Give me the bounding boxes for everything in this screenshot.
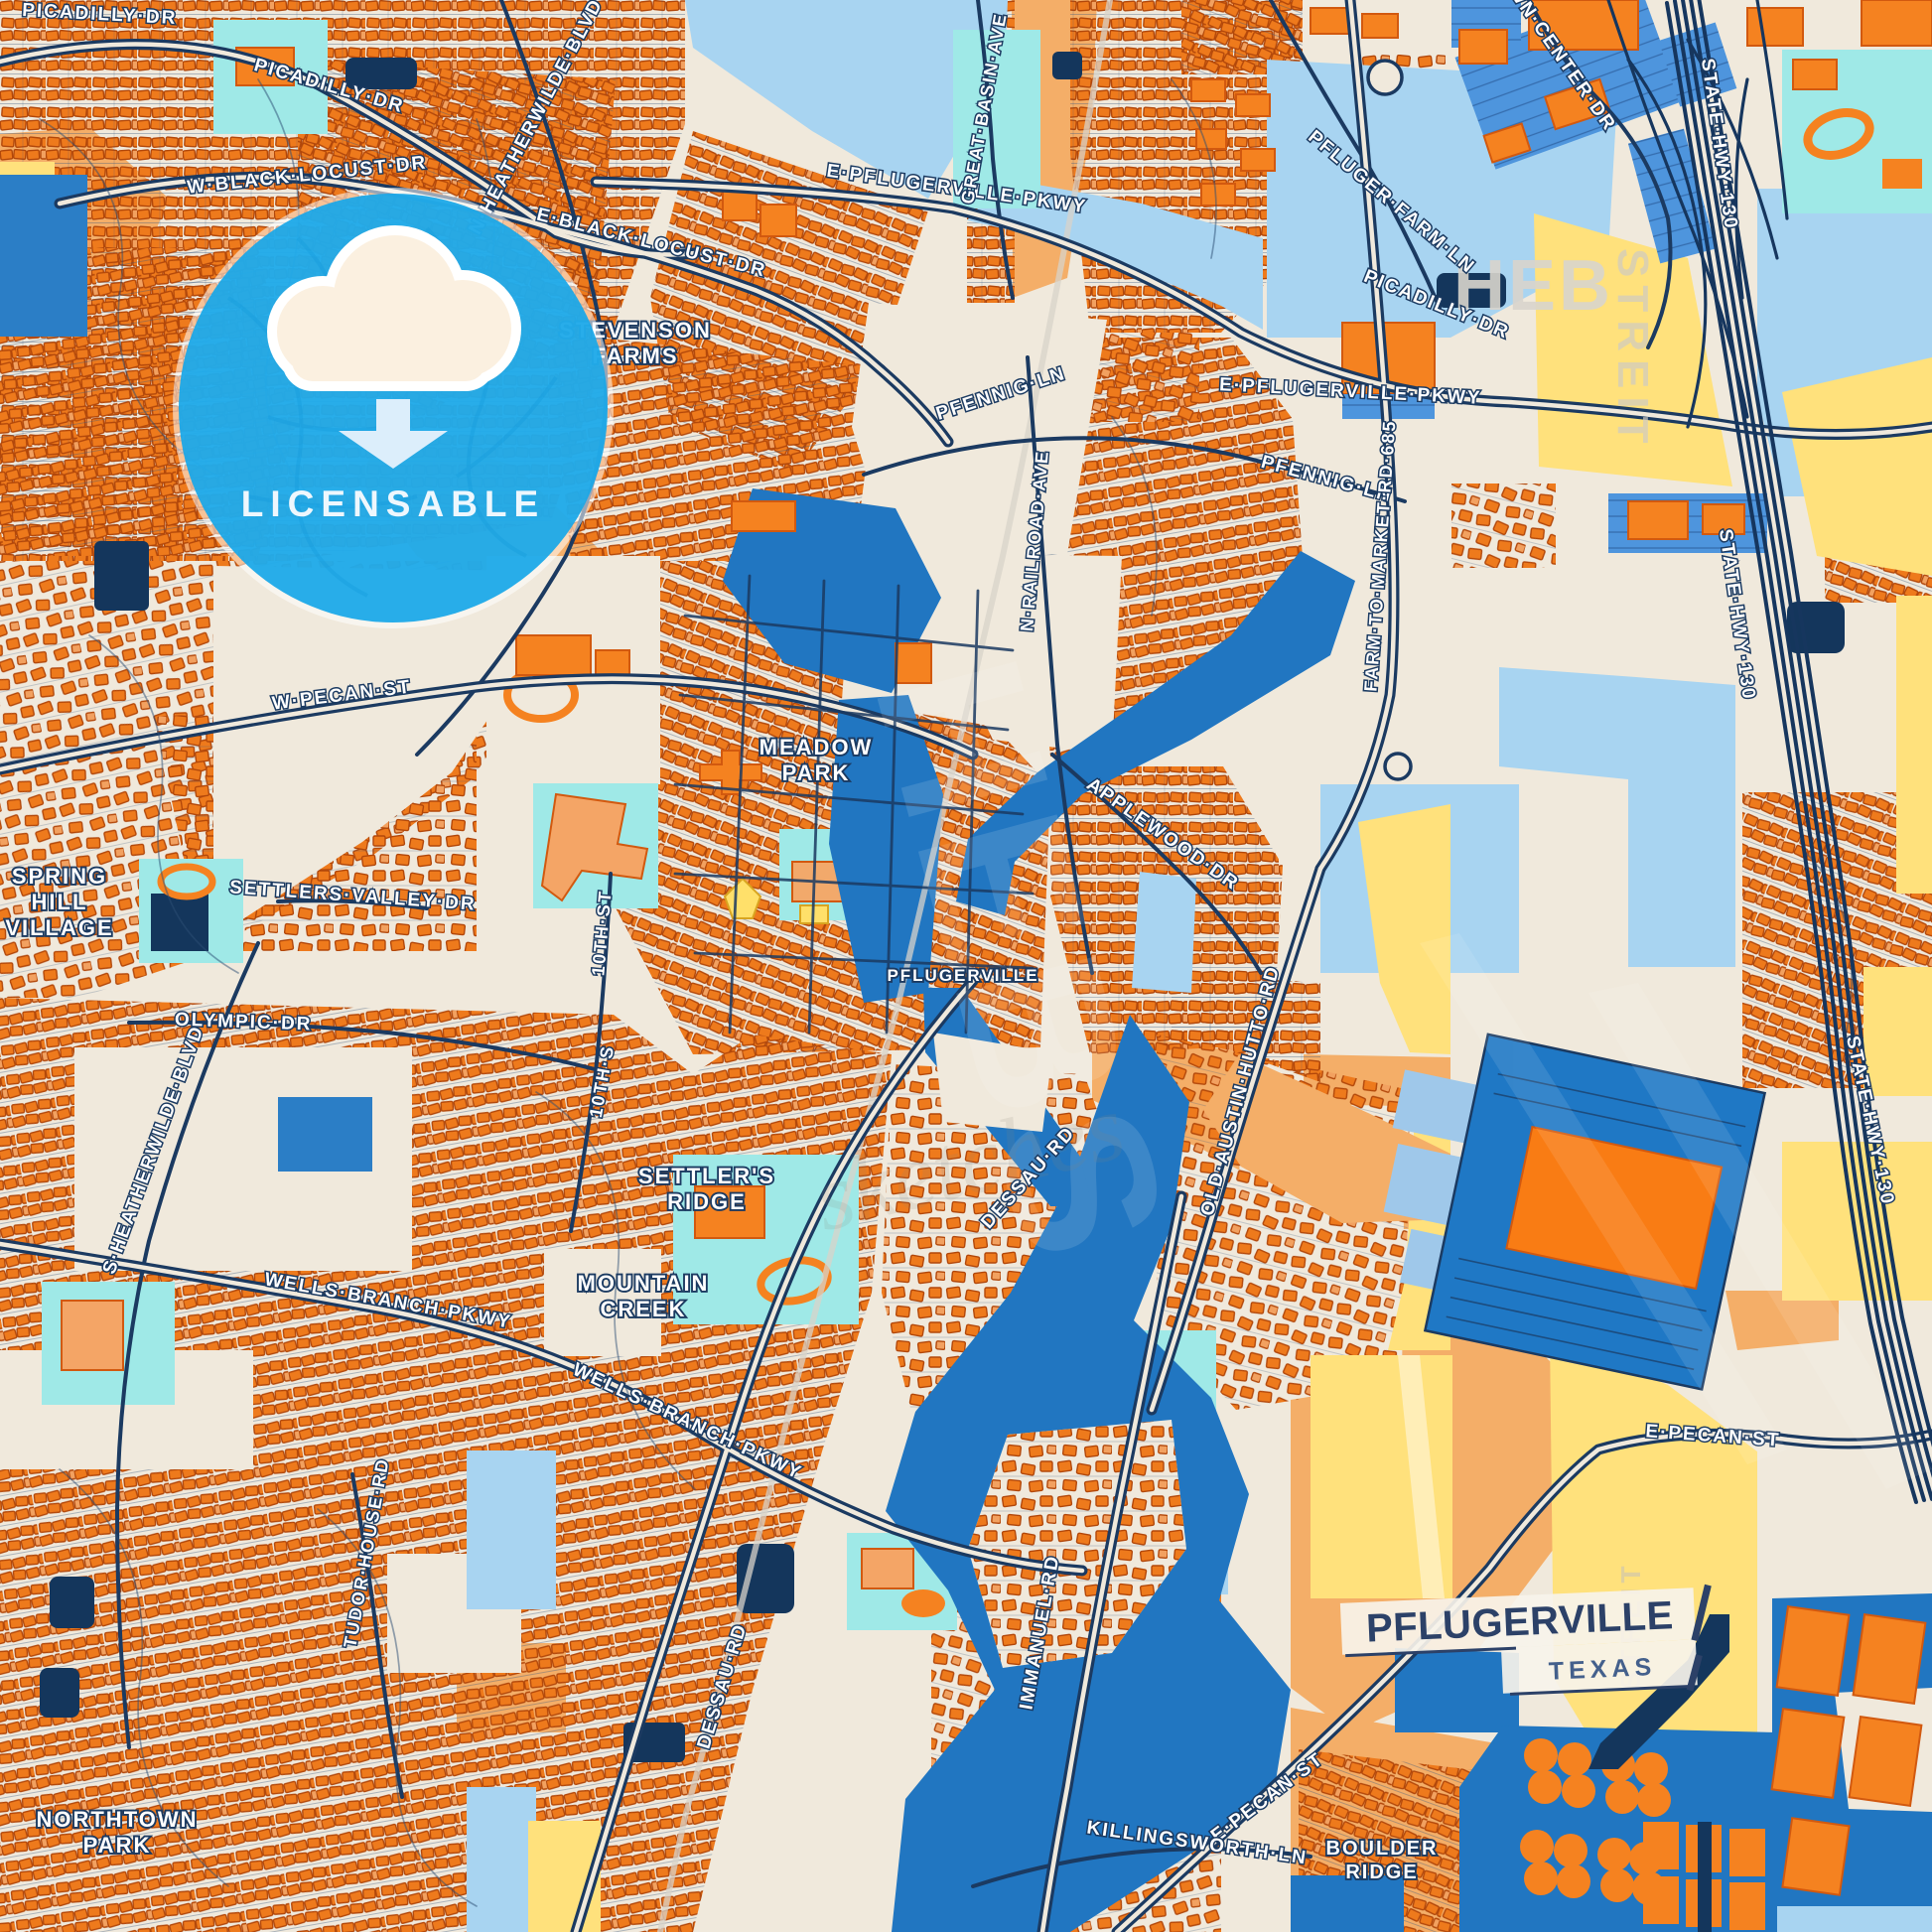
svg-text:LICENSABLE: LICENSABLE (241, 483, 545, 524)
svg-text:SETTLER'S: SETTLER'S (638, 1164, 775, 1188)
svg-text:PARK: PARK (83, 1833, 152, 1858)
svg-text:CREEK: CREEK (600, 1297, 686, 1321)
svg-text:PARK: PARK (782, 760, 851, 785)
svg-text:BOULDER: BOULDER (1326, 1838, 1439, 1860)
svg-text:PFLUGERVILLE: PFLUGERVILLE (887, 966, 1038, 985)
svg-text:RIDGE: RIDGE (667, 1189, 747, 1214)
svg-text:HILL: HILL (32, 890, 88, 914)
svg-text:TEXAS: TEXAS (1548, 1653, 1656, 1686)
svg-text:VILLAGE: VILLAGE (5, 915, 113, 940)
svg-text:MEADOW: MEADOW (759, 735, 874, 759)
svg-text:SPRING: SPRING (12, 864, 107, 889)
svg-text:RIDGE: RIDGE (1345, 1862, 1418, 1883)
svg-text:STREIT: STREIT (1608, 248, 1657, 451)
svg-text:NORTHTOWN: NORTHTOWN (36, 1807, 198, 1832)
svg-text:MOUNTAIN: MOUNTAIN (578, 1271, 710, 1296)
